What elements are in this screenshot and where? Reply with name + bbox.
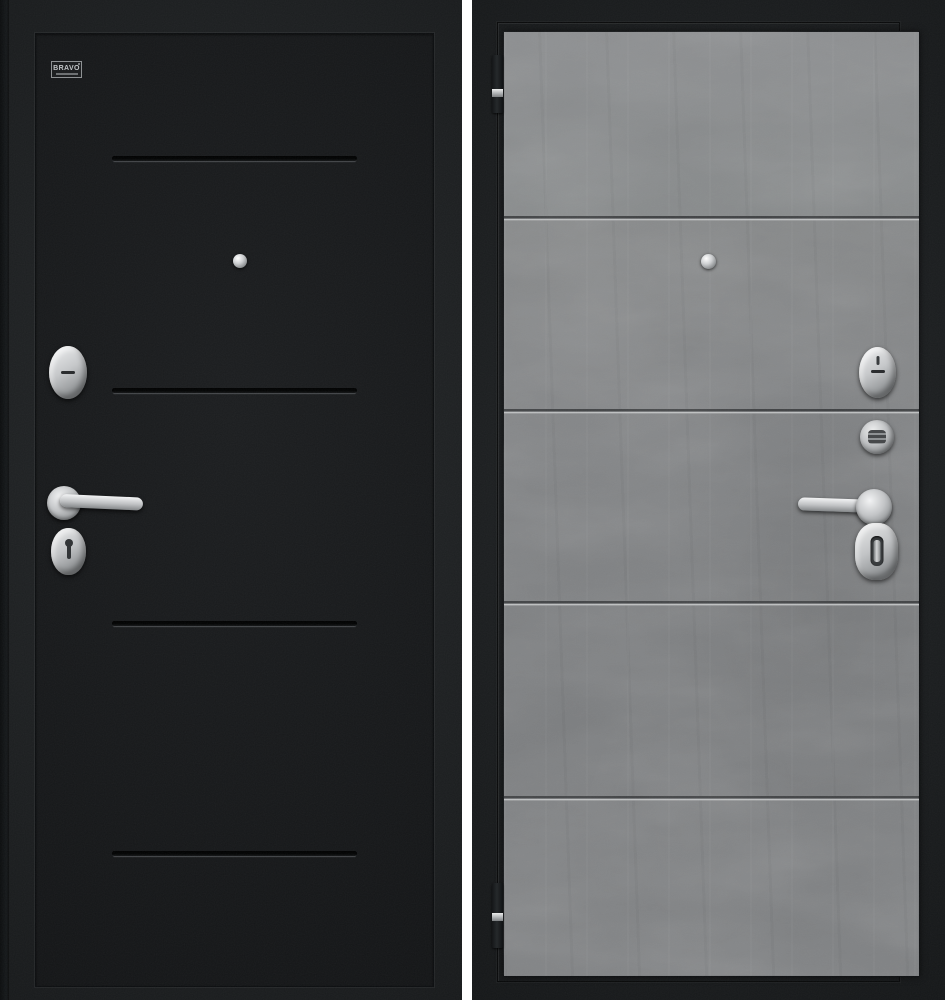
brand-badge-subtitle-bar — [56, 73, 78, 75]
brand-badge: BRAVO — [51, 61, 82, 78]
hinge-pin-band — [492, 913, 503, 921]
keyway-slot — [61, 371, 75, 374]
panel-groove — [112, 851, 357, 856]
door-interior-side — [472, 0, 945, 1000]
keyway-slot — [871, 370, 885, 373]
keyway-tick — [876, 356, 879, 365]
hinge-bottom — [492, 883, 503, 948]
brand-badge-label: BRAVO — [53, 65, 80, 72]
panel-seam-line — [504, 796, 919, 801]
peephole — [701, 254, 716, 269]
registered-mark-icon — [78, 63, 80, 65]
panel-groove — [112, 621, 357, 626]
panel-groove — [112, 388, 357, 393]
hinge-pin-band — [492, 89, 503, 97]
keyhole-escutcheon — [51, 528, 86, 575]
keyhole-slot — [67, 545, 71, 559]
door-product-photo: BRAVO — [0, 0, 945, 1000]
handle-rosette — [856, 489, 892, 525]
thumbturn-knob — [873, 540, 880, 562]
cylinder-slot — [868, 430, 886, 444]
peephole — [233, 254, 247, 268]
panel-seam-line — [504, 409, 919, 414]
panel-groove — [112, 156, 357, 161]
exterior-recessed-panel — [35, 33, 434, 987]
lock-cylinder-cover — [859, 347, 896, 398]
night-latch-cylinder — [860, 420, 894, 454]
lock-cylinder-cover — [49, 346, 87, 399]
hinge-top — [492, 55, 503, 113]
door-edge-left — [0, 0, 9, 1000]
panel-seam-line — [504, 216, 919, 221]
door-exterior-side: BRAVO — [0, 0, 462, 1000]
thumbturn-escutcheon — [855, 523, 898, 580]
panel-seam-line — [504, 601, 919, 606]
